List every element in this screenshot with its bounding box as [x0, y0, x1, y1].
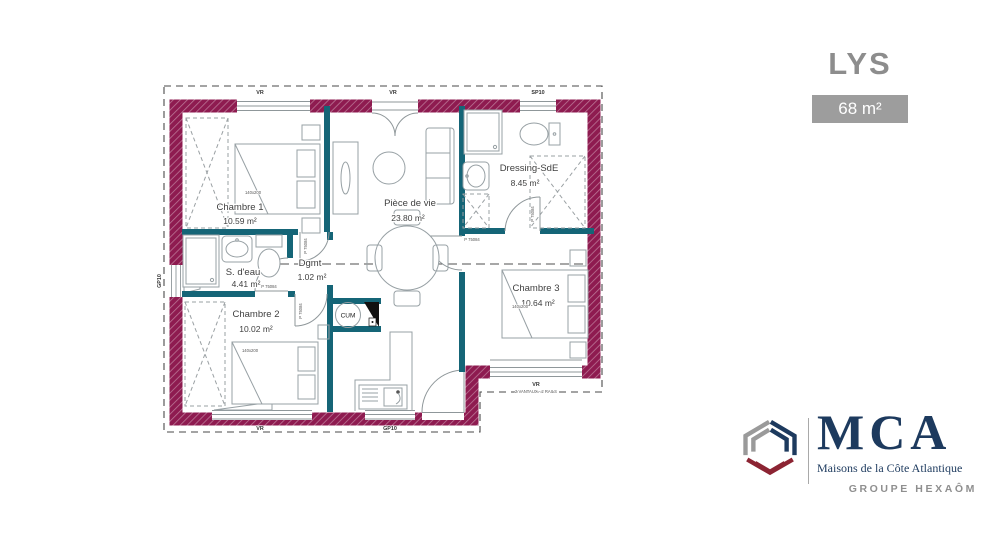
- room-label-dgmt: Dgmt: [299, 258, 322, 269]
- brand-divider: [808, 418, 809, 484]
- room-area-dressing: 8.45 m²: [511, 178, 540, 188]
- sink-icon: [359, 385, 407, 409]
- room-area-dgmt: 1.02 m²: [298, 272, 327, 282]
- door-ref-chambre3: P 75084: [464, 237, 480, 242]
- window-chambre1: [237, 99, 310, 113]
- bed-size-chambre2: 140x200: [242, 348, 259, 353]
- mca-cube-icon: [735, 416, 805, 496]
- door-ref-chambre2: P 75084: [298, 303, 303, 319]
- room-label-piece-de-vie: Pièce de vie: [384, 198, 436, 209]
- brand-group: GROUPE HEXAÔM: [817, 483, 977, 495]
- room-area-piece-de-vie: 23.80 m²: [391, 213, 425, 223]
- washbasin-icon-sdeau: [222, 236, 252, 262]
- shower-icon-sdeau: [183, 235, 219, 287]
- area-badge: 68 m²: [812, 95, 908, 123]
- floorplan-svg: CUM: [150, 80, 620, 452]
- window-dressing: [520, 99, 556, 113]
- room-area-chambre1: 10.59 m²: [223, 216, 257, 226]
- window-tag-vr-chambre1: VR: [256, 90, 264, 96]
- mca-logo: MCA Maisons de la Côte Atlantique GROUPE…: [735, 408, 985, 518]
- room-area-sdeau: 4.41 m²: [232, 279, 261, 289]
- window-tag-sp10: SP10: [531, 90, 544, 96]
- room-label-sdeau: S. d'eau: [226, 267, 261, 278]
- toilet-icon-dressing: [520, 123, 560, 145]
- window-tag-gp10-left: GP10: [157, 274, 163, 288]
- bed-size-chambre3: 140x200: [512, 304, 529, 309]
- window-tag-gp10-kitchen: GP10: [383, 426, 397, 432]
- brand-name: MCA: [817, 404, 977, 460]
- window-tag-vr-chambre3: VR: [532, 382, 540, 388]
- sofa-icon: [426, 128, 454, 204]
- room-area-chambre2: 10.02 m²: [239, 324, 273, 334]
- washbasin-icon-dressing: [463, 162, 489, 190]
- water-heater-label: CUM: [341, 313, 356, 320]
- room-label-chambre3: Chambre 3: [513, 283, 560, 294]
- brand-tagline: Maisons de la Côte Atlantique: [817, 461, 977, 476]
- door-ref-dressing: P 75084: [530, 206, 535, 222]
- plan-title: LYS: [812, 46, 908, 82]
- room-label-chambre1: Chambre 1: [217, 202, 264, 213]
- window-tag-vr-entrance: VR: [389, 90, 397, 96]
- shower-icon-dressing: [464, 110, 502, 154]
- room-label-chambre2: Chambre 2: [233, 309, 280, 320]
- window-note-chambre3: 2 VANTAUX - 2 RAILS: [515, 389, 557, 394]
- page-root: LYS 68 m²: [0, 0, 1000, 554]
- bed-size-chambre1: 140x200: [245, 190, 262, 195]
- sideboard-icon: [333, 142, 358, 214]
- window-tag-vr-chambre2: VR: [256, 426, 264, 432]
- door-ref-chambre1: P 75084: [303, 238, 308, 254]
- room-label-dressing: Dressing-SdE: [500, 163, 559, 174]
- door-ref-sdeau: P 75084: [261, 284, 277, 289]
